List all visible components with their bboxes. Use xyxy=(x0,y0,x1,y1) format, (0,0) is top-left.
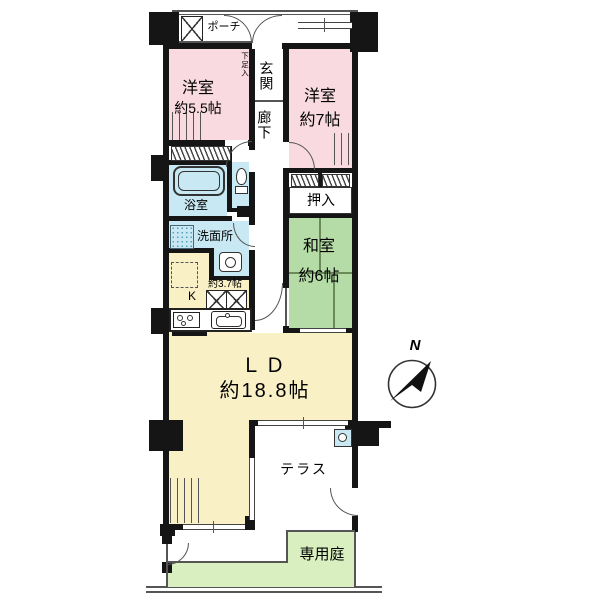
terrace-label: テラス xyxy=(276,461,332,477)
washroom-label: 洗面所 xyxy=(190,229,240,243)
wall-chunk-toilet xyxy=(237,206,249,217)
western-room-2-name: 洋室 xyxy=(287,88,353,106)
private-garden-label: 専用庭 xyxy=(294,546,350,564)
sink-icon xyxy=(211,311,246,329)
window-slider-tick xyxy=(303,417,304,429)
window-ld-bottom-tick xyxy=(213,521,214,533)
kitchen-size: 約3.7帖 xyxy=(200,279,250,291)
outer-line-top-2 xyxy=(172,14,358,15)
window-ld-side xyxy=(249,458,255,520)
ld-door-arc xyxy=(255,283,283,321)
bed1-closet-hatch xyxy=(171,146,231,161)
japanese-room-name: 和室 xyxy=(286,238,352,256)
wall-corridor-left-2 xyxy=(249,172,255,225)
window-bed2-top-tick xyxy=(324,18,325,32)
washing-machine-icon xyxy=(334,429,352,447)
outer-line-bottom-2 xyxy=(146,591,382,593)
stove-icon xyxy=(173,312,200,328)
kitchen-label: K xyxy=(184,289,200,303)
shoe-closet-label: 下足入 xyxy=(240,50,249,80)
bed1-window-marks xyxy=(172,112,202,140)
entrance-label: 玄関 xyxy=(258,50,274,102)
toilet-icon xyxy=(236,168,247,185)
garden-fence-right xyxy=(354,532,356,587)
bathroom-label: 浴室 xyxy=(174,198,218,212)
wall-top-left xyxy=(163,43,252,49)
column-top-left xyxy=(149,12,179,45)
wall-bath-bottom xyxy=(163,216,232,221)
private-garden-floor-left xyxy=(167,563,287,587)
compass-n-label: N xyxy=(404,337,426,355)
japanese-room-sliding-door-line xyxy=(285,288,287,326)
floor-plan: ポーチ 玄関 下足入 廊下 洋室 約5.5帖 洋室 約7帖 浴室 洗面所 押入 … xyxy=(0,0,600,600)
bed2-window-marks xyxy=(334,133,352,165)
oshiire-hatch-right xyxy=(322,174,350,187)
ld-window-marks xyxy=(170,478,204,523)
basin-icon xyxy=(219,252,242,272)
toilet-tank-icon xyxy=(235,186,248,194)
living-dining-name: ＬＤ xyxy=(232,355,298,377)
garden-line-top-left xyxy=(167,561,288,563)
column-bottom-right-stub xyxy=(379,421,391,428)
oshiire-hatch-left xyxy=(291,174,319,187)
garden-fence-left xyxy=(166,544,168,588)
living-dining-size: 約18.8帖 xyxy=(200,379,330,403)
wall-oshiire-bottom xyxy=(283,214,358,218)
western-room-1-size: 約5.5帖 xyxy=(160,100,236,116)
western-room-1-name: 洋室 xyxy=(165,80,231,98)
outer-line-top xyxy=(172,10,358,12)
terrace-gate-arc xyxy=(330,488,358,516)
western-room-2-size: 約7帖 xyxy=(285,112,355,130)
garden-line-top-right xyxy=(287,530,355,532)
oshiire-label: 押入 xyxy=(296,192,346,208)
hallway-label: 廊下 xyxy=(256,103,272,147)
garden-line-step xyxy=(286,530,288,563)
window-washitsu xyxy=(300,328,346,333)
bathtub-icon xyxy=(173,166,225,196)
fridge-space xyxy=(171,262,198,288)
entrance-door-arc xyxy=(252,15,282,43)
wall-top-right xyxy=(282,43,358,49)
japanese-room-size: 約6帖 xyxy=(286,268,352,286)
porch-label: ポーチ xyxy=(196,21,252,34)
